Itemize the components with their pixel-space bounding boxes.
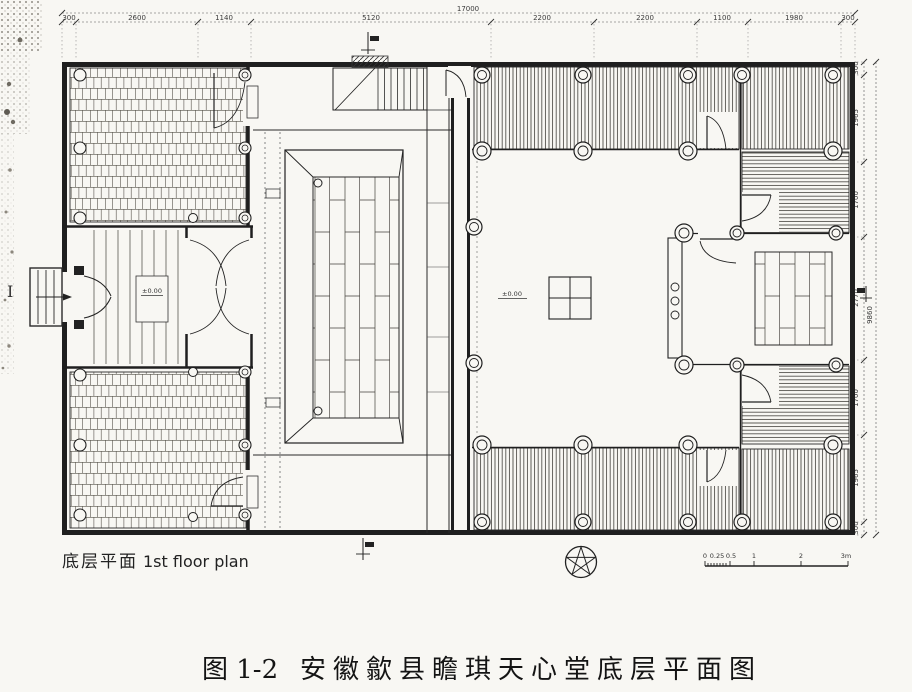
room-bottom-left [70, 372, 246, 528]
plan-title: 底层平面 1st floor plan [62, 552, 249, 572]
dim-top-seg-0: 300 [62, 14, 75, 22]
scale-label-5: 3m [841, 552, 851, 560]
rear-hall-recess [668, 238, 832, 358]
plan-title-en: 1st floor plan [143, 552, 249, 571]
north-arrow-icon [566, 547, 597, 578]
dim-top-total: 17000 [457, 5, 479, 13]
figure-caption-number: 图 1-2 [202, 655, 278, 685]
scale-label-0: 0 [703, 552, 707, 560]
section-cut-flag-bottom-icon [356, 538, 374, 560]
scale-label-4: 2 [799, 552, 803, 560]
elevation-mark-courtyard: ±0.00 [502, 290, 522, 298]
skywell-frame [285, 150, 403, 443]
dimension-line-top: 17000 300 2600 1140 5120 2200 2200 1100 … [59, 5, 858, 58]
central-dividing-wall [446, 62, 471, 535]
scale-label-2: 0.5 [726, 552, 736, 560]
room-top-left [70, 68, 246, 222]
dim-top-seg-1: 2600 [128, 14, 146, 22]
dim-top-seg-2: 1140 [215, 14, 233, 22]
section-cut-flag-top-icon [361, 32, 379, 54]
dim-top-seg-7: 1980 [785, 14, 803, 22]
scale-label-3: 1 [752, 552, 756, 560]
west-entrance: I [7, 266, 111, 329]
scale-label-1: 0.25 [710, 552, 724, 560]
plan-title-zh: 底层平面 [62, 552, 138, 572]
section-label-left: I [7, 282, 13, 301]
courtyard-centre: ±0.00 [498, 277, 591, 319]
dim-top-seg-3: 5120 [362, 14, 380, 22]
elevation-mark-entry: ±0.00 [142, 287, 162, 295]
dim-top-seg-6: 1100 [713, 14, 731, 22]
figure-caption: 图 1-2 安徽歙县瞻琪天心堂底层平面图 [202, 655, 762, 685]
dim-top-seg-4: 2200 [533, 14, 551, 22]
entrance-door-leaf [84, 297, 111, 318]
dim-top-seg-5: 2200 [636, 14, 654, 22]
entrance-door-leaf [84, 276, 111, 296]
dim-right-total: 9860 [866, 306, 874, 324]
floor-plan-drawing: 17000 300 2600 1140 5120 2200 2200 1100 … [0, 0, 912, 692]
dim-top-seg-8: 300 [841, 14, 854, 22]
scale-bar: 0 0.25 0.5 1 2 3m [703, 552, 851, 566]
entry-hall-corridor: ±0.00 [94, 230, 178, 364]
figure-caption-title: 安徽歙县瞻琪天心堂底层平面图 [300, 655, 762, 685]
scanned-floor-plan-page: 17000 300 2600 1140 5120 2200 2200 1100 … [0, 0, 912, 692]
